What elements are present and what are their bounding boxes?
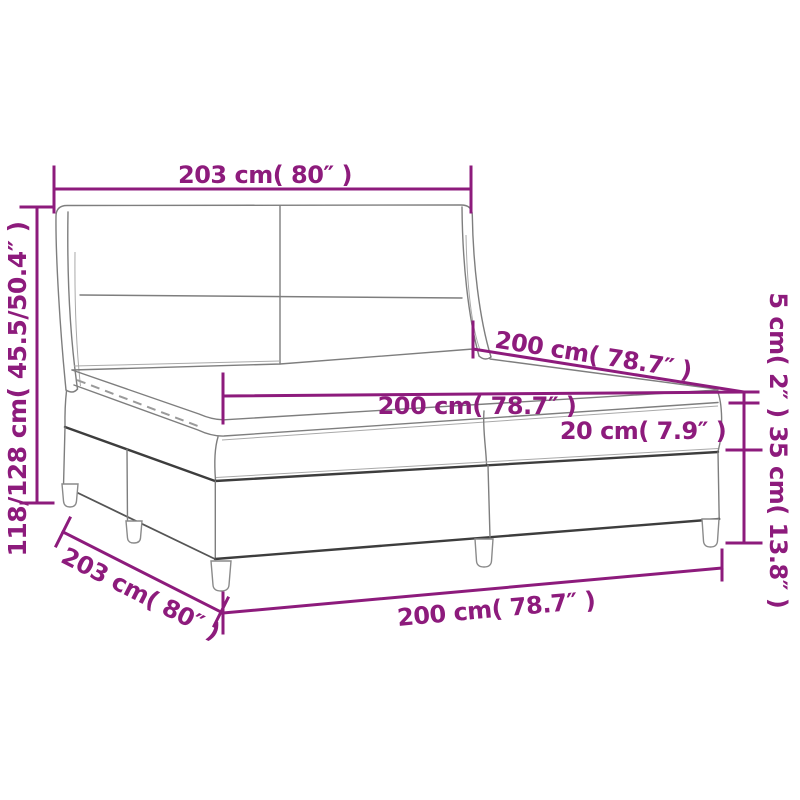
bed-leg-front-middle — [475, 539, 493, 567]
dim-bed-depth: 200 cm( 78.7″ ) — [473, 322, 744, 392]
dim-label-side-length: 203 cm( 80″ ) — [57, 542, 225, 646]
dim-tick — [56, 518, 70, 546]
dim-label-base-height: 35 cm( 13.8″ ) — [764, 426, 792, 609]
headboard-horizontal-seam — [80, 295, 462, 298]
base-bottom-edge-front — [215, 519, 719, 559]
dim-label-mattress: 20 cm( 7.9″ ) — [560, 417, 726, 445]
dim-right-stack: 5 cm( 2″ ) 35 cm( 13.8″ ) — [727, 292, 792, 608]
headboard-left-wing-bottom — [66, 389, 78, 392]
dim-headboard-width: 203 cm( 80″ ) — [54, 161, 471, 212]
dim-label-headboard-width: 203 cm( 80″ ) — [178, 161, 352, 189]
dim-label-depth: 200 cm( 78.7″ ) — [493, 326, 694, 385]
bed-leg-back-left — [62, 484, 78, 507]
diagram-canvas: 203 cm( 80″ ) 118/128 cm( 45.5/50.4″ ) 2… — [0, 0, 800, 800]
base-top-edge-front — [215, 452, 718, 481]
topper-stitching — [77, 380, 203, 428]
mattress-back-edge — [72, 349, 473, 370]
mattress-front-corner — [215, 437, 218, 480]
dim-side-length: 203 cm( 80″ ) — [56, 518, 228, 646]
dim-label-topper: 5 cm( 2″ ) — [764, 292, 792, 417]
headboard-right-wing-bottom — [479, 356, 491, 359]
base-top-piping — [216, 449, 718, 478]
base-top-edge-left — [65, 427, 215, 481]
bed-left-back-edge — [65, 391, 67, 427]
dim-label-overall-height: 118/128 cm( 45.5/50.4″ ) — [3, 222, 32, 557]
base-right-edge — [718, 452, 719, 519]
base-left-seam — [127, 450, 128, 523]
dimension-annotations: 203 cm( 80″ ) 118/128 cm( 45.5/50.4″ ) 2… — [3, 161, 792, 646]
base-front-seam — [488, 466, 490, 538]
base-back-edge — [64, 427, 66, 486]
bed-leg-front-corner — [211, 561, 231, 591]
bed-dimension-diagram: 203 cm( 80″ ) 118/128 cm( 45.5/50.4″ ) 2… — [0, 0, 800, 800]
dim-label-front-width: 200 cm( 78.7″ ) — [396, 586, 597, 632]
dim-front-width: 200 cm( 78.7″ ) — [223, 550, 722, 633]
dim-overall-height: 118/128 cm( 45.5/50.4″ ) — [3, 207, 53, 557]
bed-leg-left-middle — [126, 521, 142, 543]
headboard-left-wing — [68, 212, 78, 389]
dim-label-surface-width: 200 cm( 78.7″ ) — [378, 392, 577, 420]
bed-leg-front-right — [702, 519, 719, 547]
